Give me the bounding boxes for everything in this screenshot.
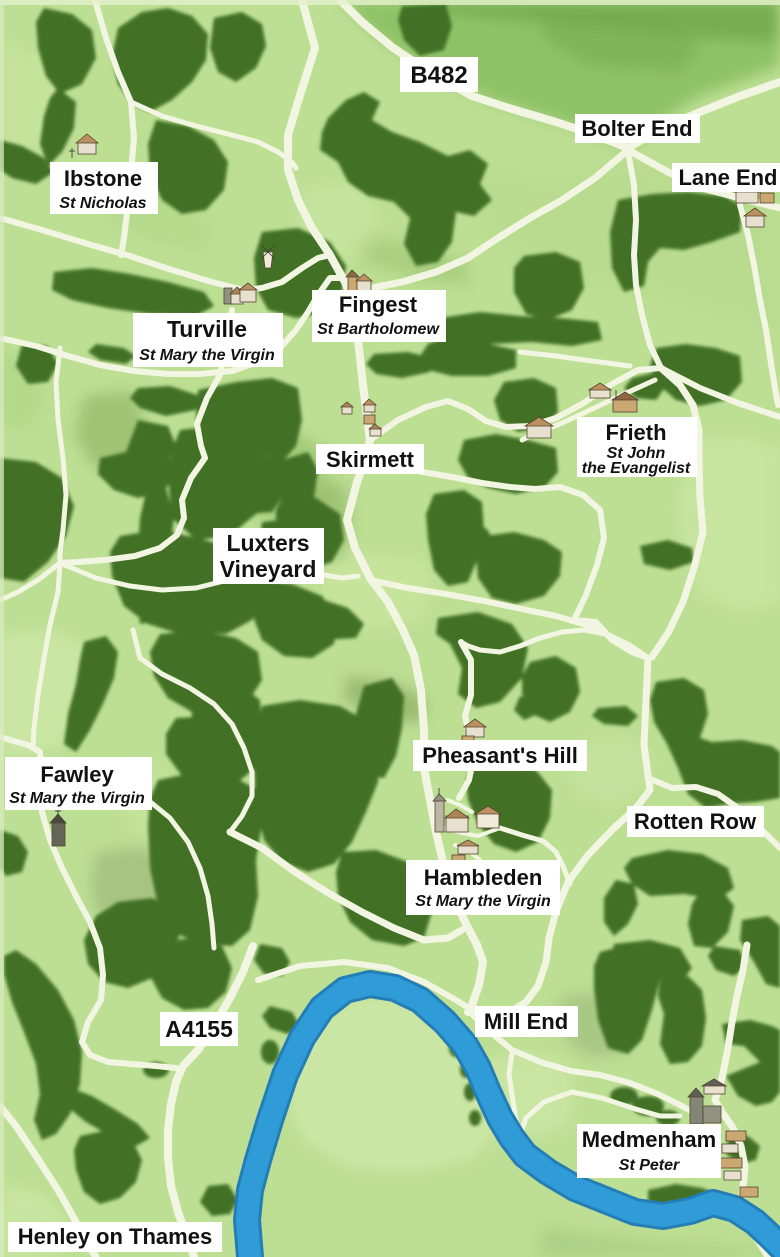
- svg-text:Pheasant's Hill: Pheasant's Hill: [422, 743, 578, 768]
- svg-text:Lane End: Lane End: [678, 165, 777, 190]
- svg-text:Ibstone: Ibstone: [64, 166, 142, 191]
- svg-text:Medmenham: Medmenham: [582, 1127, 716, 1152]
- svg-text:Turville: Turville: [167, 316, 247, 342]
- svg-text:St Mary the Virgin: St Mary the Virgin: [139, 347, 275, 364]
- svg-text:St Mary the Virgin: St Mary the Virgin: [9, 790, 145, 807]
- svg-text:Hambleden: Hambleden: [424, 865, 543, 890]
- svg-text:Bolter End: Bolter End: [581, 116, 692, 141]
- svg-text:St Nicholas: St Nicholas: [59, 195, 146, 212]
- svg-text:Frieth: Frieth: [605, 420, 666, 445]
- svg-text:St Bartholomew: St Bartholomew: [317, 321, 440, 338]
- svg-text:Skirmett: Skirmett: [326, 447, 415, 472]
- svg-text:Fawley: Fawley: [40, 762, 114, 787]
- svg-text:Fingest: Fingest: [339, 292, 418, 317]
- svg-text:Rotten Row: Rotten Row: [634, 809, 757, 834]
- svg-text:St Mary the Virgin: St Mary the Virgin: [415, 893, 551, 910]
- svg-text:the Evangelist: the Evangelist: [582, 460, 691, 477]
- svg-text:A4155: A4155: [165, 1016, 233, 1042]
- svg-text:Vineyard: Vineyard: [220, 556, 317, 582]
- svg-text:St Peter: St Peter: [619, 1157, 680, 1174]
- svg-text:Luxters: Luxters: [226, 530, 309, 556]
- svg-text:Henley on Thames: Henley on Thames: [18, 1224, 212, 1249]
- svg-text:B482: B482: [410, 62, 467, 89]
- svg-text:Mill End: Mill End: [484, 1009, 568, 1034]
